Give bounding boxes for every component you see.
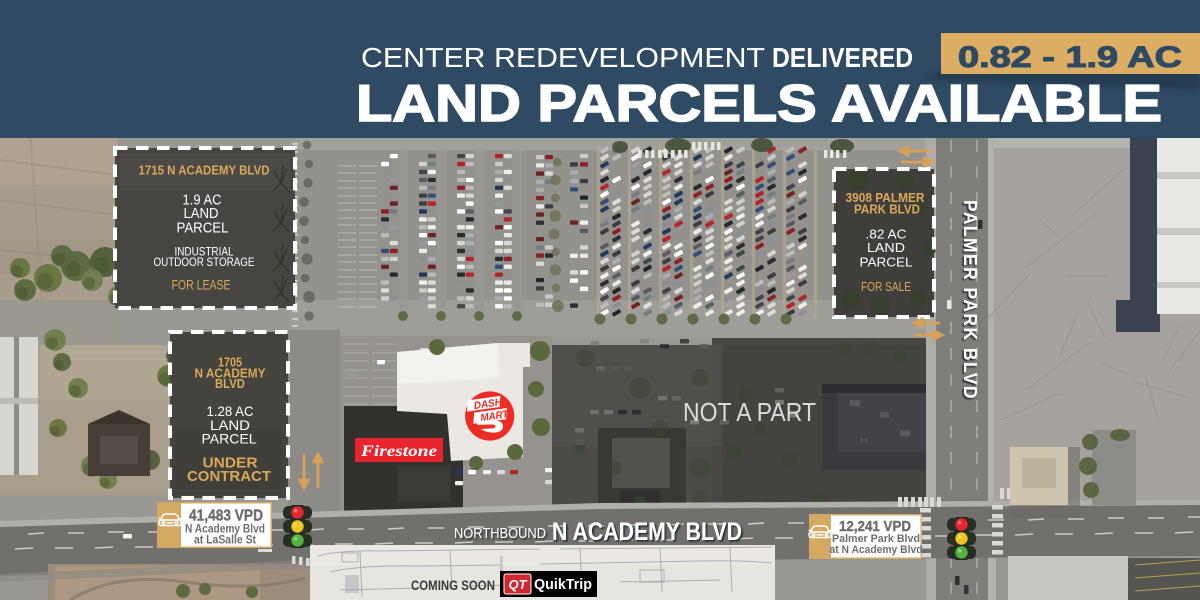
svg-text:CENTER REDEVELOPMENT: CENTER REDEVELOPMENT xyxy=(361,42,765,73)
svg-text:BLVD: BLVD xyxy=(215,376,245,391)
svg-text:LAND: LAND xyxy=(867,240,905,255)
svg-text:NOT A PART: NOT A PART xyxy=(683,397,816,427)
svg-text:PARCEL: PARCEL xyxy=(860,255,913,270)
svg-text:DELIVERED: DELIVERED xyxy=(772,42,913,73)
svg-text:QT: QT xyxy=(508,577,527,592)
svg-text:CONTRACT: CONTRACT xyxy=(187,468,271,485)
svg-text:1715 N ACADEMY BLVD: 1715 N ACADEMY BLVD xyxy=(139,163,270,178)
svg-text:COMING SOON: COMING SOON xyxy=(411,578,495,593)
svg-text:PARCEL: PARCEL xyxy=(202,430,257,446)
svg-text:NORTHBOUND: NORTHBOUND xyxy=(454,526,546,542)
svg-text:PARCEL: PARCEL xyxy=(177,221,229,237)
svg-text:LAND PARCELS AVAILABLE: LAND PARCELS AVAILABLE xyxy=(356,75,1162,133)
svg-text:N ACADEMY BLVD: N ACADEMY BLVD xyxy=(552,518,742,546)
svg-text:PARK BLVD: PARK BLVD xyxy=(854,201,920,216)
svg-text:QuikTrip: QuikTrip xyxy=(534,577,592,593)
svg-text:PALMER PARK BLVD: PALMER PARK BLVD xyxy=(960,200,980,400)
svg-text:OUTDOOR STORAGE: OUTDOOR STORAGE xyxy=(154,257,255,269)
svg-text:at N Academy Blvd: at N Academy Blvd xyxy=(830,544,923,556)
svg-text:FOR SALE: FOR SALE xyxy=(861,280,911,294)
svg-text:0.82 - 1.9 AC: 0.82 - 1.9 AC xyxy=(958,41,1182,74)
svg-text:41,483 VPD: 41,483 VPD xyxy=(189,508,263,525)
svg-text:Firestone: Firestone xyxy=(360,443,437,460)
svg-text:FOR LEASE: FOR LEASE xyxy=(172,278,231,293)
svg-text:at LaSalle St: at LaSalle St xyxy=(194,535,256,547)
